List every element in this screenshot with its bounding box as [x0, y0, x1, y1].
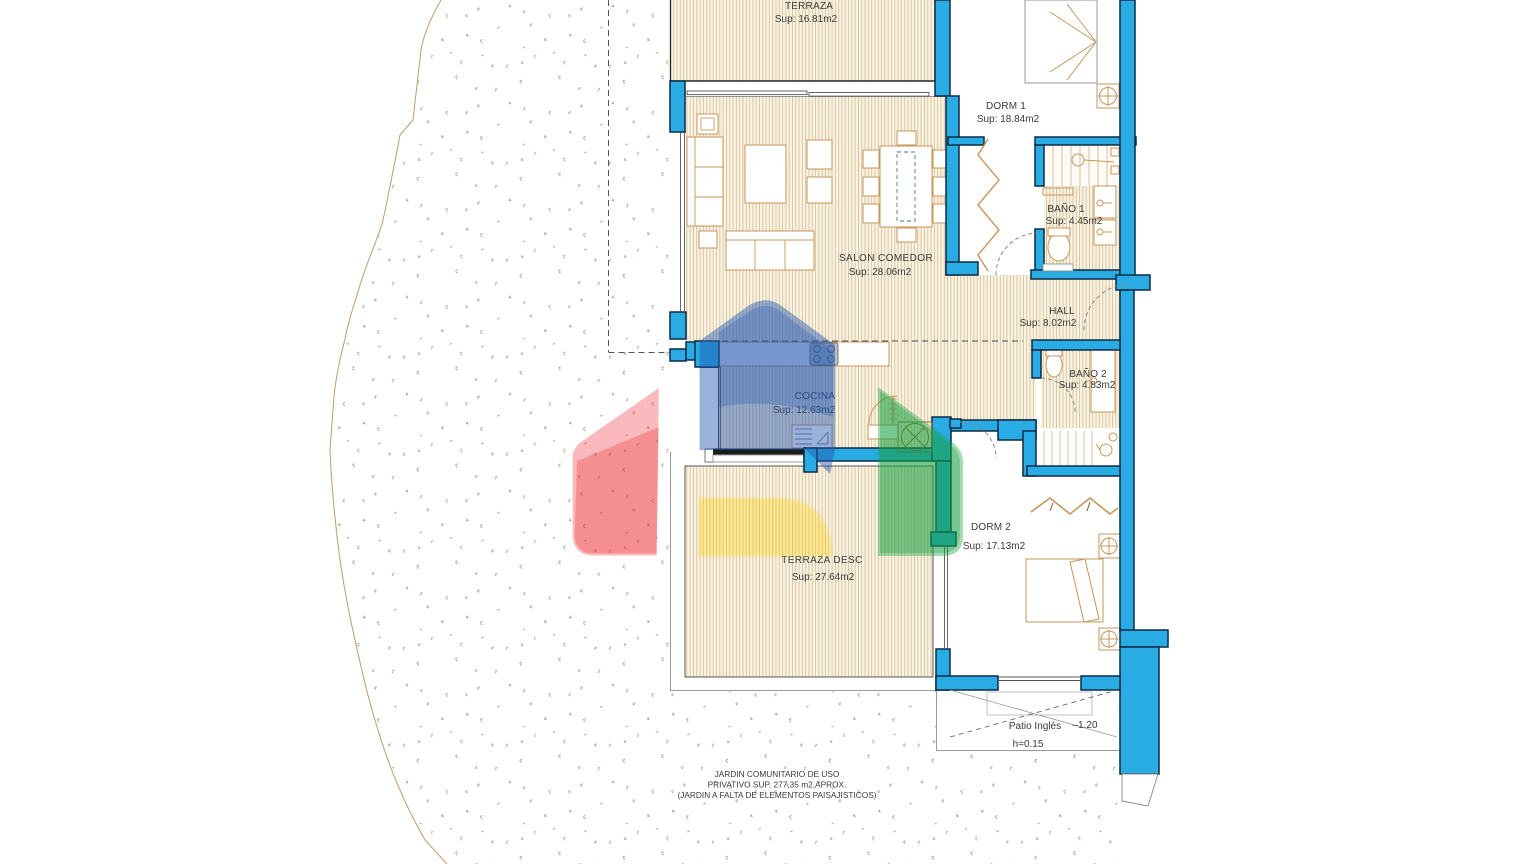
svg-text:Patio Inglés: Patio Inglés	[1009, 721, 1061, 732]
svg-text:PRIVATIVO SUP. 277,35 m2,APRO: PRIVATIVO SUP. 277,35 m2,APROX.	[708, 780, 847, 790]
svg-text:HALL: HALL	[1049, 306, 1075, 317]
svg-text:BAÑO 2: BAÑO 2	[1069, 367, 1107, 380]
svg-text:TERRAZA: TERRAZA	[785, 1, 833, 12]
svg-text:(JARDIN A FALTA DE ELEMENTOS: (JARDIN A FALTA DE ELEMENTOS PAISAJISTIC…	[677, 790, 876, 800]
svg-text:JARDIN COMUNITARIO DE USO: JARDIN COMUNITARIO DE USO	[715, 769, 840, 779]
svg-text:Sup: 8.02m2: Sup: 8.02m2	[1020, 318, 1077, 329]
svg-text:–1.20: –1.20	[1072, 720, 1097, 731]
svg-text:DORM 1: DORM 1	[986, 101, 1026, 112]
svg-text:h=0.15: h=0.15	[1013, 739, 1044, 750]
svg-text:SALON COMEDOR: SALON COMEDOR	[839, 253, 933, 264]
svg-text:Sup: 4.83m2: Sup: 4.83m2	[1059, 380, 1116, 391]
svg-text:Sup: 18.84m2: Sup: 18.84m2	[977, 114, 1040, 125]
svg-text:DORM 2: DORM 2	[971, 522, 1011, 533]
svg-text:Sup: 16.81m2: Sup: 16.81m2	[775, 14, 838, 25]
svg-text:Sup: 27.64m2: Sup: 27.64m2	[792, 572, 855, 583]
svg-text:Sup: 28.06m2: Sup: 28.06m2	[849, 267, 912, 278]
svg-text:BAÑO 1: BAÑO 1	[1047, 202, 1085, 215]
svg-text:Sup: 4.45m2: Sup: 4.45m2	[1046, 216, 1103, 227]
svg-text:Sup: 17.13m2: Sup: 17.13m2	[963, 541, 1026, 552]
